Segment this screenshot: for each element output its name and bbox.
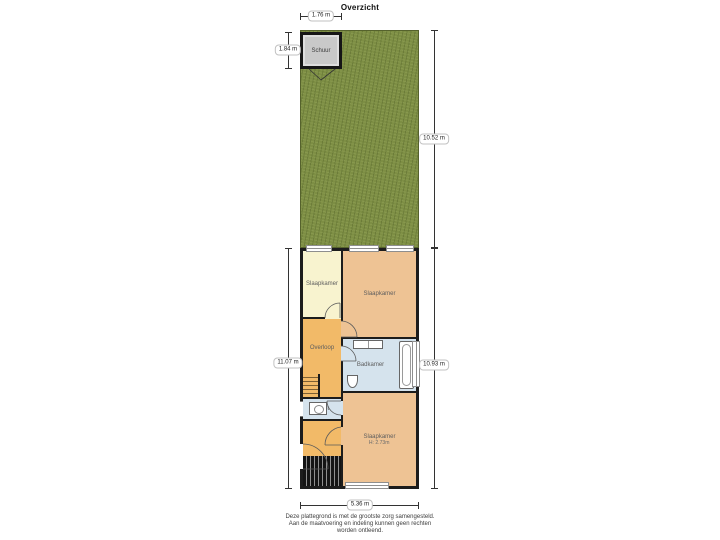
door-gap xyxy=(341,346,343,361)
dim-house-depth-right: 10.93 m xyxy=(419,360,449,371)
door-gap xyxy=(341,321,343,337)
window xyxy=(386,245,414,252)
room-label: Slaapkamer xyxy=(363,434,395,440)
dim-house-width: 5.36 m xyxy=(347,500,373,511)
window xyxy=(300,401,303,417)
dim-garden-depth: 10.52 m xyxy=(419,134,449,145)
room-hallway xyxy=(303,421,341,456)
dimension-line xyxy=(288,248,289,489)
disclaimer-line: Aan de maatvoering en indeling kunnen ge… xyxy=(0,521,720,528)
window xyxy=(345,482,389,489)
plan-title: Overzicht xyxy=(0,3,720,12)
room-height-note: H: 2.73m xyxy=(369,440,390,445)
room-label: Slaapkamer xyxy=(363,291,395,297)
toilet-icon xyxy=(309,402,327,415)
door-gap xyxy=(341,401,343,415)
room-bedroom-top-right: Slaapkamer xyxy=(343,251,416,337)
shed: Schuur xyxy=(300,32,342,69)
house-outline: Slaapkamer Slaapkamer Overloop Badkamer … xyxy=(300,248,419,489)
washbasin-icon xyxy=(353,340,383,349)
disclaimer-line: worden ontleend. xyxy=(0,528,720,535)
stairs-icon xyxy=(303,374,320,397)
dim-house-depth-left: 11.07 m xyxy=(273,358,302,369)
dim-shed-depth: 1.84 m xyxy=(275,45,301,56)
stairwell-void xyxy=(303,456,341,486)
room-bedroom-top-left: Slaapkamer xyxy=(303,251,341,317)
room-label: Slaapkamer xyxy=(306,281,338,287)
front-door xyxy=(300,444,303,469)
door-gap xyxy=(325,317,341,319)
dim-shed-width: 1.76 m xyxy=(308,11,334,22)
disclaimer: Deze plattegrond is met de grootste zorg… xyxy=(0,514,720,535)
shed-label: Schuur xyxy=(311,48,330,54)
window xyxy=(306,245,332,252)
room-bedroom-bottom: Slaapkamer H: 2.73m xyxy=(343,393,416,486)
room-label: Badkamer xyxy=(357,362,384,368)
window xyxy=(349,245,379,252)
door-gap xyxy=(341,427,343,445)
disclaimer-line: Deze plattegrond is met de grootste zorg… xyxy=(0,514,720,521)
room-label: Overloop xyxy=(310,345,334,351)
floorplan-canvas: Overzicht Schuur Slaapkamer Slaapkamer O… xyxy=(0,0,720,540)
